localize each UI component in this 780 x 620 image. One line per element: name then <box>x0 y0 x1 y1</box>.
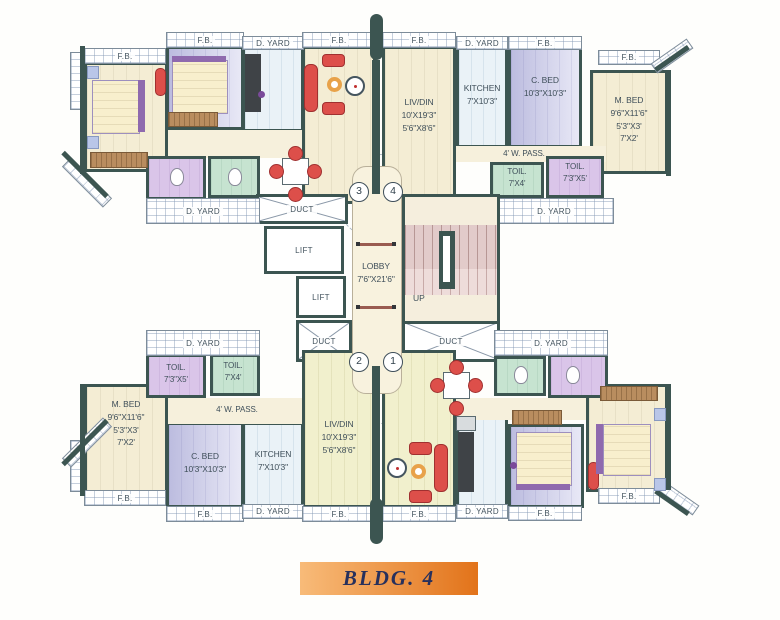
room-label-mbed: M. BED9'6"X11'6"5'3"X3'7'X2' <box>108 398 145 449</box>
door-hinge-icon <box>392 305 396 309</box>
stair-divider-slot <box>443 236 450 282</box>
bed-icon <box>516 432 572 486</box>
toilet-label: TOIL.7'X4' <box>223 360 242 384</box>
flower-bed-strip: F.B. <box>508 506 582 521</box>
lobby-door <box>358 243 394 246</box>
dining-table-icon <box>443 372 470 399</box>
sofa-icon <box>434 444 448 492</box>
flower-bed-strip: F.B. <box>84 48 166 64</box>
chair-icon <box>430 378 445 393</box>
wardrobe-icon <box>90 152 148 168</box>
passage <box>168 130 302 158</box>
room-label-mbed: M. BED9'6"X11'6"5'3"X3'7'X2' <box>611 94 648 145</box>
toilet-label: TOIL.7'X4' <box>507 166 526 190</box>
dry-yard-strip: D. YARD <box>146 330 260 356</box>
room-label-livdin: LIV/DIN10'X19'3"5'6"X8'6" <box>402 96 437 134</box>
chair-icon <box>449 360 464 375</box>
spine-wall <box>372 366 380 500</box>
chair-icon <box>288 146 303 161</box>
kitchen-counter-icon <box>245 54 261 112</box>
wardrobe-icon <box>512 410 562 425</box>
door-hinge-icon <box>356 305 360 309</box>
chair-icon <box>468 378 483 393</box>
bed-icon <box>92 80 140 134</box>
flower-bed-strip: F.B. <box>508 36 582 50</box>
floor-plan: F.B. F.B. D. YARD F.B. D. YARD F.B. D. Y… <box>0 0 780 620</box>
armchair-icon <box>409 490 432 503</box>
passage-label: 4' W. PASS. <box>503 148 545 160</box>
decor-dot-icon <box>258 91 265 98</box>
room-label-cbed: C. BED10'3"X10'3" <box>524 74 566 100</box>
armchair-icon <box>322 54 345 67</box>
bed-headboard-icon <box>516 484 570 490</box>
unit-number-4: 4 <box>383 182 403 202</box>
door-hinge-icon <box>392 242 396 246</box>
flower-bed-strip: F.B. <box>302 506 376 522</box>
spine-wall <box>372 60 380 194</box>
wardrobe-icon <box>168 112 218 127</box>
dry-yard-strip: D. YARD <box>242 36 304 50</box>
unit-number-3: 3 <box>349 182 369 202</box>
dining-table-icon <box>282 158 309 185</box>
side-table-icon <box>654 408 666 421</box>
cabinet-icon <box>155 68 166 96</box>
building-title: BLDG. 4 <box>343 566 435 591</box>
clock-icon <box>345 76 365 96</box>
lift: LIFT <box>264 226 344 274</box>
bed-headboard-icon <box>138 80 145 132</box>
room-label-kitchen: KITCHEN7'X10'3" <box>255 448 292 474</box>
side-table-icon <box>87 136 99 149</box>
flower-bed-strip: F.B. <box>382 32 456 48</box>
stairs-up-label: UP <box>413 293 425 303</box>
toilet-wc-icon <box>566 366 580 384</box>
spine-wall <box>370 14 383 60</box>
decor-dot-icon <box>510 462 517 469</box>
sofa-icon <box>304 64 318 112</box>
chair-icon <box>449 401 464 416</box>
toilet-wc-icon <box>514 366 528 384</box>
bed-headboard-icon <box>172 56 226 62</box>
toilet-label: TOIL.7'3"X5' <box>164 362 188 386</box>
bed-icon <box>172 60 228 114</box>
bed-headboard-icon <box>596 424 603 474</box>
outer-wall <box>80 46 85 174</box>
room-label-livdin: LIV/DIN10'X19'3"5'6"X8'6" <box>322 418 357 456</box>
round-table-icon <box>411 464 426 479</box>
building-title-banner: BLDG. 4 <box>300 562 478 595</box>
outer-wall <box>666 70 671 176</box>
clock-icon <box>387 458 407 478</box>
room-label-kitchen: KITCHEN7'X10'3" <box>464 82 501 108</box>
sink-icon <box>456 416 476 431</box>
kitchen-counter-icon <box>458 432 474 492</box>
bed-icon <box>603 424 651 476</box>
chair-icon <box>288 187 303 202</box>
lobby-label: LOBBY7'6"X21'6" <box>357 260 395 286</box>
lobby-door <box>358 306 394 309</box>
dry-yard-strip: D. YARD <box>494 330 608 356</box>
staircase: UP <box>402 194 500 324</box>
flower-bed-strip: F.B. <box>166 506 244 522</box>
outer-wall <box>666 384 671 490</box>
door-hinge-icon <box>356 242 360 246</box>
stair-divider <box>439 231 455 289</box>
flower-bed-strip: F.B. <box>598 488 660 504</box>
side-table-icon <box>654 478 666 491</box>
toilet-wc-icon <box>170 168 184 186</box>
armchair-icon <box>322 102 345 115</box>
unit-number-2: 2 <box>349 352 369 372</box>
dry-yard-strip: D. YARD <box>494 198 614 224</box>
dry-yard-strip: D. YARD <box>242 504 304 519</box>
round-table-icon <box>327 77 342 92</box>
chair-icon <box>307 164 322 179</box>
side-table-icon <box>87 66 99 79</box>
toilet-label: TOIL.7'3"X5' <box>563 161 587 185</box>
duct: DUCT <box>256 194 348 224</box>
passage-label: 4' W. PASS. <box>216 404 258 416</box>
flower-bed-strip: F.B. <box>166 32 244 48</box>
dry-yard-strip: D. YARD <box>456 36 508 50</box>
toilet-wc-icon <box>228 168 242 186</box>
flower-bed-strip: F.B. <box>84 490 166 506</box>
flower-bed-strip: F.B. <box>382 506 456 522</box>
room-label-cbed: C. BED10'3"X10'3" <box>184 450 226 476</box>
spine-wall <box>370 498 383 544</box>
wardrobe-icon <box>600 386 658 401</box>
dry-yard-strip: D. YARD <box>456 504 508 519</box>
armchair-icon <box>409 442 432 455</box>
lift: LIFT <box>296 276 346 318</box>
unit-number-1: 1 <box>383 352 403 372</box>
chair-icon <box>269 164 284 179</box>
flower-bed-strip: F.B. <box>302 32 376 48</box>
dry-yard-strip: D. YARD <box>146 198 260 224</box>
